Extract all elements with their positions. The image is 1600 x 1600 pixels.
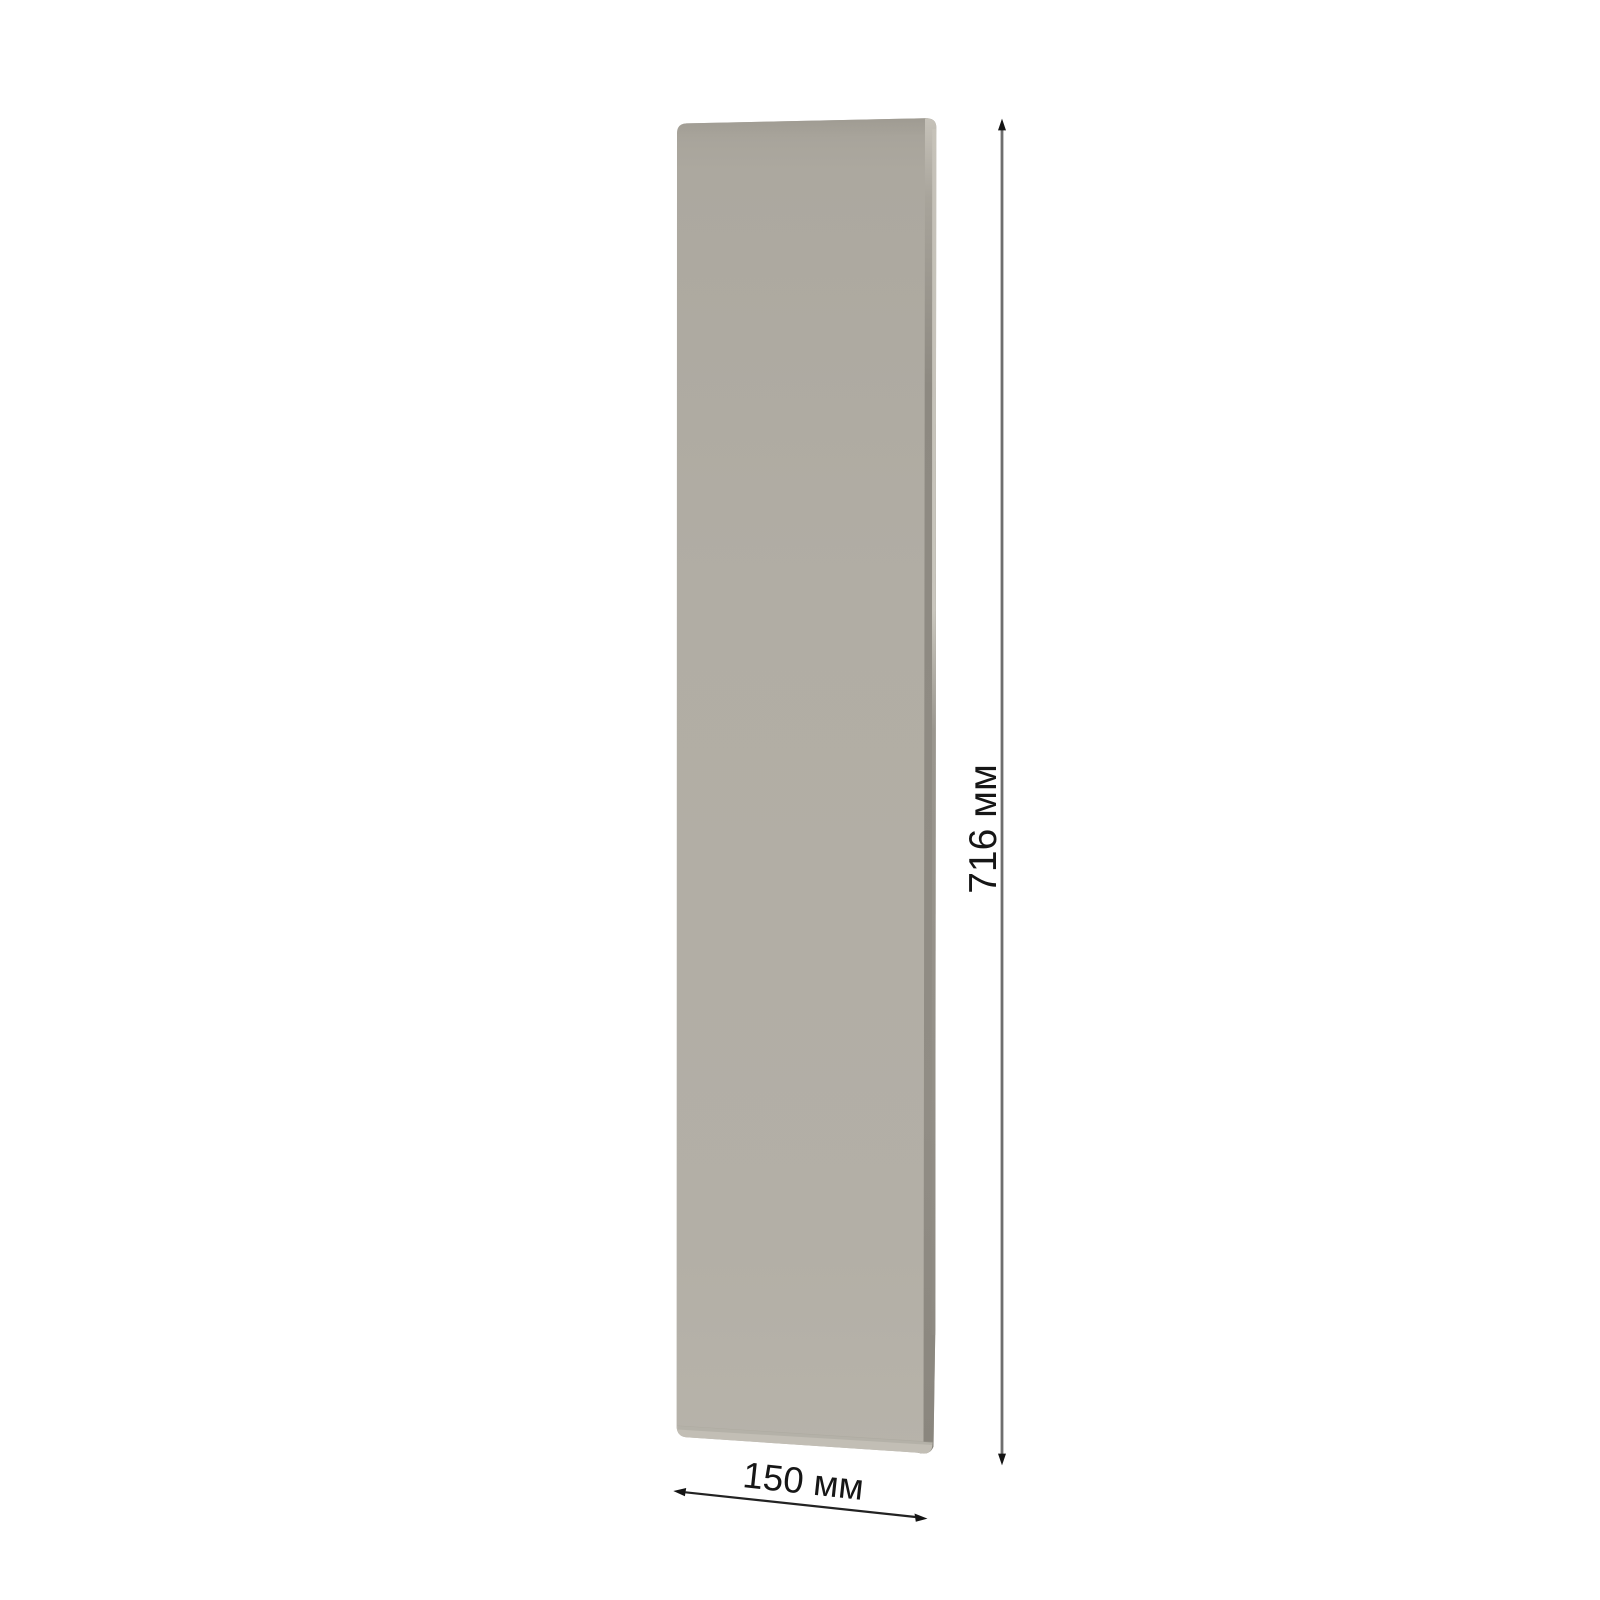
svg-text:716 мм: 716 мм — [962, 764, 1005, 894]
